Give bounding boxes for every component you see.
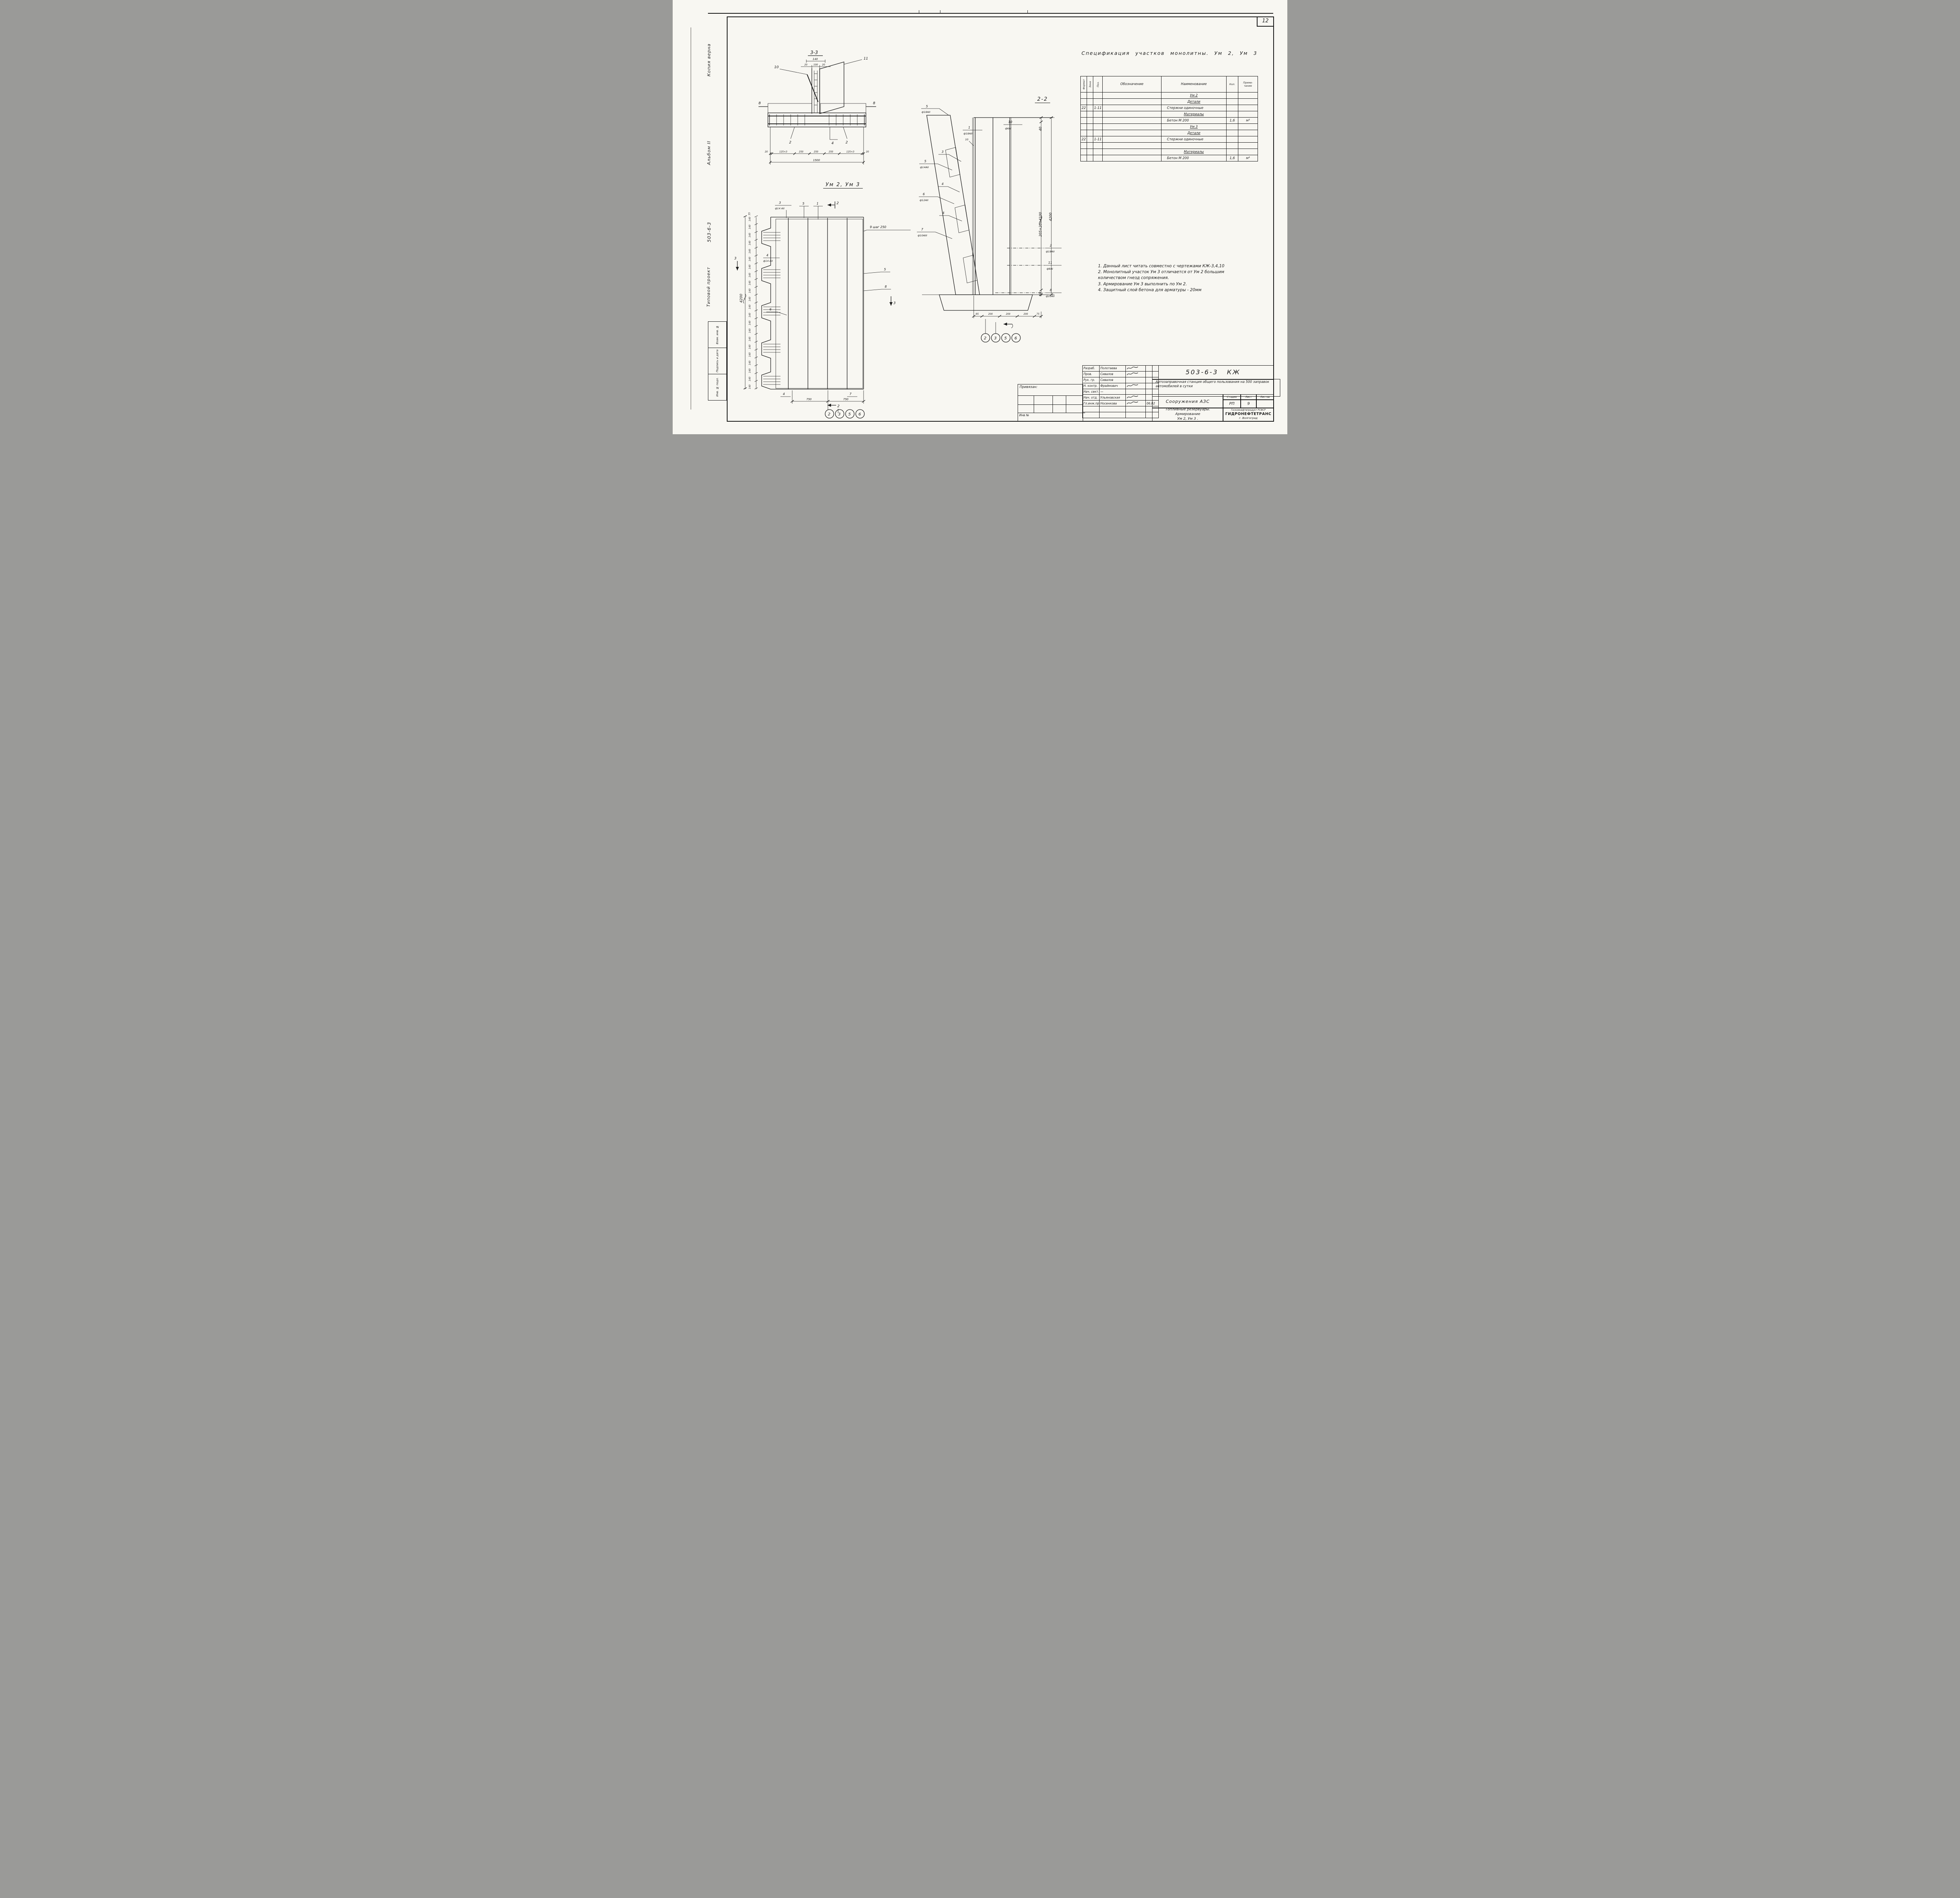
svg-text:ф8АI: ф8АI xyxy=(1047,267,1053,270)
sign-name: Фраймович xyxy=(1100,383,1126,389)
sign-role: Пров. xyxy=(1083,371,1100,377)
signature-row xyxy=(1083,412,1159,418)
dim-tick-label: 140 xyxy=(749,361,751,365)
sign-signature xyxy=(1126,366,1146,372)
signature-row: Рук. гр. Сивалов xyxy=(1083,377,1159,383)
organization-box: Госкомнефтепродукт РСФСР ГИДРОНЕФТЕТРАНС… xyxy=(1223,408,1274,422)
drawing-sheet: Копия верна Альбом II 503-6-3 Типовой пр… xyxy=(673,0,1287,434)
sign-name: Носенкова xyxy=(1100,401,1126,406)
spec-table-title: Спецификация участков монолитны. Ум 2, У… xyxy=(1082,50,1258,56)
svg-text:5: 5 xyxy=(924,160,926,163)
svg-text:5: 5 xyxy=(802,202,804,205)
signature-row xyxy=(1083,406,1159,412)
svg-text:4: 4 xyxy=(766,254,768,257)
dim-2-2-total: 4200 xyxy=(1049,212,1053,221)
svg-text:6: 6 xyxy=(1014,336,1017,341)
spec-row: Материалы xyxy=(1081,111,1258,118)
sheets-total xyxy=(1256,399,1274,408)
dim-tick-label: 140 xyxy=(749,337,751,341)
margin-copy-note: Копия верна xyxy=(706,23,711,97)
plan-left-dim-ticks: 1401401401401401401401401401401401401401… xyxy=(748,218,753,388)
spec-table: Формат Зона Поз. Обозначение Наименовани… xyxy=(1080,76,1258,161)
svg-text:20: 20 xyxy=(822,63,825,66)
dim-2-2-bottom: 60 xyxy=(1039,292,1043,296)
dim-tick-label: 140 xyxy=(749,241,751,245)
section-3-3-title: 3-3 xyxy=(810,50,818,55)
svg-text:11: 11 xyxy=(1048,261,1052,265)
dim-tick-label: 140 xyxy=(749,305,751,309)
stage-value: РП xyxy=(1223,399,1241,408)
drawing-frame: 12 3-3 140 20 100 20 xyxy=(727,16,1274,422)
spec-row: Детали xyxy=(1081,130,1258,136)
svg-text:ф14 АII: ф14 АII xyxy=(763,259,773,263)
sign-signature xyxy=(1126,371,1146,377)
dim-tick-label: 140 xyxy=(749,329,751,333)
svg-text:ф18АII: ф18АII xyxy=(1046,250,1054,253)
svg-text:6: 6 xyxy=(858,412,861,417)
stamp-cell-label: Подпись и дата xyxy=(716,350,719,372)
svg-text:6: 6 xyxy=(769,308,771,311)
note-line: 4. Защитный слой бетона для арматуры - 2… xyxy=(1098,287,1239,293)
svg-text:1: 1 xyxy=(817,202,818,205)
svg-text:250: 250 xyxy=(814,150,818,153)
org-name: ГИДРОНЕФТЕТРАНС xyxy=(1225,412,1272,417)
dim-tick-label: 140 xyxy=(749,225,751,229)
svg-text:5: 5 xyxy=(848,412,851,417)
margin-album: Альбом II xyxy=(706,129,711,176)
dim-tick-label: 140 xyxy=(749,217,751,221)
attachment-box: Привязан: Инв № xyxy=(1018,384,1083,422)
sign-signature xyxy=(1126,377,1146,383)
org-city: г. Волгоград xyxy=(1239,417,1258,420)
svg-text:10: 10 xyxy=(1008,120,1012,124)
svg-text:ф14 АII: ф14 АII xyxy=(775,207,784,210)
dim-tick-label: 140 xyxy=(749,313,751,317)
svg-text:3: 3 xyxy=(779,201,781,205)
sign-name: Ульяновская xyxy=(1100,395,1126,401)
mark-10: 10 xyxy=(774,65,779,69)
svg-text:5: 5 xyxy=(884,268,886,271)
mark-4: 4 xyxy=(831,141,834,145)
spec-row: Бетон М 200 1,6 м³ xyxy=(1081,118,1258,124)
dim-2-2-chain: 205×20=4100 xyxy=(1039,212,1043,237)
sign-signature xyxy=(1126,383,1146,389)
svg-text:3: 3 xyxy=(893,301,896,305)
dim-tick-label: 140 xyxy=(749,289,751,293)
fold-mark xyxy=(919,10,919,14)
svg-text:ф10АII: ф10АII xyxy=(1046,295,1054,298)
document-number: 503-6-3 КЖ xyxy=(1152,365,1274,380)
svg-text:200: 200 xyxy=(988,313,993,315)
sign-name: Сивалов xyxy=(1100,371,1126,377)
dim-tick-label: 140 xyxy=(749,384,751,389)
sign-role: Нач. сект. xyxy=(1083,389,1100,395)
sign-role xyxy=(1083,406,1100,412)
svg-text:5: 5 xyxy=(1004,336,1007,341)
svg-text:750: 750 xyxy=(843,398,849,401)
general-notes: 1. Данный лист читать совместно с чертеж… xyxy=(1098,263,1239,293)
svg-text:3: 3 xyxy=(942,150,944,154)
svg-text:95: 95 xyxy=(976,313,979,315)
svg-text:75: 75 xyxy=(1036,313,1040,315)
plan-title: Ум 2, Ум 3 xyxy=(823,182,863,189)
dim-tick-label: 140 xyxy=(749,249,751,253)
svg-text:3: 3 xyxy=(734,257,737,261)
svg-text:100: 100 xyxy=(813,63,818,66)
dim-tick-label: 140 xyxy=(749,233,751,237)
svg-text:20: 20 xyxy=(804,63,808,66)
svg-text:7: 7 xyxy=(921,228,924,231)
svg-text:ф18АIII: ф18АIII xyxy=(964,132,973,135)
dim-tick-label: 140 xyxy=(749,273,751,277)
svg-text:140: 140 xyxy=(813,58,818,61)
spec-row: Ум 3 xyxy=(1081,124,1258,130)
sign-role: Н. контр. xyxy=(1083,383,1100,389)
plan-total-height-dim: 4200 xyxy=(739,294,743,303)
mark-8-left: 8 xyxy=(759,102,761,105)
svg-text:125×3: 125×3 xyxy=(779,150,787,153)
svg-text:8: 8 xyxy=(885,285,887,288)
svg-text:250: 250 xyxy=(799,150,804,153)
svg-text:ф12АII: ф12АII xyxy=(920,199,928,202)
margin-doc-number: 503-6-3 xyxy=(706,212,712,253)
signature-row: Разраб. Полотаева xyxy=(1083,366,1159,372)
dim-tick-label: 140 xyxy=(749,353,751,357)
svg-text:10: 10 xyxy=(965,138,968,141)
sign-signature xyxy=(1126,406,1146,412)
sheet-top-edge-line xyxy=(708,13,1273,14)
svg-text:9 шаг 250: 9 шаг 250 xyxy=(870,225,886,229)
signature-row: Н. контр. Фраймович xyxy=(1083,383,1159,389)
dim-tick-label: 140 xyxy=(749,297,751,301)
spec-row: 22 1-11 Стержни одиночные xyxy=(1081,136,1258,143)
sign-signature xyxy=(1126,412,1146,418)
svg-text:ф18АII: ф18АII xyxy=(922,111,930,114)
svg-text:2: 2 xyxy=(837,404,840,408)
dim-tick-label: 140 xyxy=(749,321,751,325)
plan-top-tick: 35 xyxy=(748,212,751,216)
spec-row: 22 1-11 Стержни одиночные xyxy=(1081,105,1258,111)
plan-um2-um3-drawing: 3 ф14 АII 5 1 2 xyxy=(733,194,914,423)
svg-text:4: 4 xyxy=(783,392,785,396)
section-3-3-drawing: 3-3 140 20 100 20 11 10 xyxy=(757,44,878,173)
sign-role: Гл.инж.пр. xyxy=(1083,401,1100,406)
margin-project-type: Типовой проект xyxy=(706,256,711,318)
svg-text:750: 750 xyxy=(806,398,812,401)
sign-signature xyxy=(1126,395,1146,401)
sign-signature xyxy=(1126,389,1146,395)
mark-11: 11 xyxy=(864,57,868,61)
spec-row: Ум 2 xyxy=(1081,92,1258,99)
svg-text:3: 3 xyxy=(838,412,840,417)
dim-tick-label: 140 xyxy=(749,377,751,381)
sign-signature xyxy=(1126,401,1146,406)
svg-text:ф10АIII: ф10АIII xyxy=(918,234,927,237)
page-number: 12 xyxy=(1257,17,1273,27)
svg-text:2: 2 xyxy=(837,201,839,205)
spec-row: Детали xyxy=(1081,99,1258,105)
sign-name xyxy=(1100,412,1126,418)
svg-text:6: 6 xyxy=(923,192,925,196)
svg-text:2: 2 xyxy=(984,336,986,341)
svg-text:20: 20 xyxy=(866,150,869,153)
sign-name: Полотаева xyxy=(1100,366,1126,372)
sign-role: Нач. отд. xyxy=(1083,395,1100,401)
svg-text:4: 4 xyxy=(942,211,944,215)
sheet-number: 9 xyxy=(1240,399,1257,408)
svg-text:200: 200 xyxy=(1024,313,1028,315)
svg-text:ф14АII: ф14АII xyxy=(920,166,929,169)
attached-label: Привязан: xyxy=(1018,384,1083,390)
sheet-subject: Топливные резервуары. Армирование Ум 2, … xyxy=(1152,408,1223,422)
fold-mark xyxy=(1027,10,1028,14)
svg-text:5: 5 xyxy=(926,105,928,108)
margin-stamp: Взам. инв. № Подпись и дата Инв. № подл. xyxy=(708,321,727,401)
signature-row: Пров. Сивалов xyxy=(1083,371,1159,377)
mark-2-right: 2 xyxy=(846,141,848,145)
mark-8-right: 8 xyxy=(873,102,875,105)
svg-text:ф6АI: ф6АI xyxy=(1005,127,1011,130)
signature-row: Гл.инж.пр. Носенкова 06.82 xyxy=(1083,401,1159,406)
dim-tick-label: 140 xyxy=(749,344,751,349)
org-head: Госкомнефтепродукт РСФСР xyxy=(1231,409,1266,412)
svg-text:7: 7 xyxy=(849,392,852,396)
sign-name: Сивалов xyxy=(1100,377,1126,383)
dim-tick-label: 140 xyxy=(749,368,751,373)
svg-text:200: 200 xyxy=(1006,313,1011,315)
inventory-number-label: Инв № xyxy=(1018,413,1085,422)
svg-text:1: 1 xyxy=(968,126,970,129)
spec-row: Бетон М 200 1,6 м³ xyxy=(1081,155,1258,161)
title-block: Привязан: Инв № Разраб. Полотаева xyxy=(1018,365,1273,421)
stamp-cell-label: Взам. инв. № xyxy=(716,325,719,344)
dim-tick-label: 140 xyxy=(749,257,751,261)
svg-text:4: 4 xyxy=(942,182,944,186)
signature-row: Нач. отд. Ульяновская xyxy=(1083,395,1159,401)
spec-row: Материалы xyxy=(1081,149,1258,155)
note-line: 3. Армирование Ум 3 выполнить по Ум 2. xyxy=(1098,281,1239,287)
stamp-cell-label: Инв. № подл. xyxy=(716,377,719,397)
sign-role: Разраб. xyxy=(1083,366,1100,372)
dim-tick-label: 140 xyxy=(749,281,751,285)
sign-role xyxy=(1083,412,1100,418)
sign-role: Рук. гр. xyxy=(1083,377,1100,383)
fold-mark xyxy=(940,10,940,14)
svg-text:250: 250 xyxy=(829,150,833,153)
dim-tick-label: 140 xyxy=(749,265,751,269)
signature-row: Нач. сект. — xyxy=(1083,389,1159,395)
svg-text:20: 20 xyxy=(765,150,768,153)
svg-text:3: 3 xyxy=(994,336,996,341)
paper-left-edge xyxy=(691,27,691,410)
mark-2-left: 2 xyxy=(789,141,791,145)
note-line: 1. Данный лист читать совместно с чертеж… xyxy=(1098,263,1239,269)
sign-name: — xyxy=(1100,389,1126,395)
svg-text:2: 2 xyxy=(828,412,830,417)
svg-text:1500: 1500 xyxy=(813,159,820,162)
spec-header-row: Формат Зона Поз. Обозначение Наименовани… xyxy=(1081,76,1258,92)
signature-table: Разраб. Полотаева Пров. Сивалов xyxy=(1082,365,1159,418)
sign-name xyxy=(1100,406,1126,412)
svg-text:125×3: 125×3 xyxy=(846,150,854,153)
object-name: Сооружения АЗС xyxy=(1152,394,1223,408)
dim-2-2-top: 40 xyxy=(1039,127,1043,131)
spec-row xyxy=(1081,143,1258,149)
section-2-2-title: 2-2 xyxy=(1035,96,1050,103)
note-line: 2. Монолитный участок Ум 3 отличается от… xyxy=(1098,269,1239,281)
